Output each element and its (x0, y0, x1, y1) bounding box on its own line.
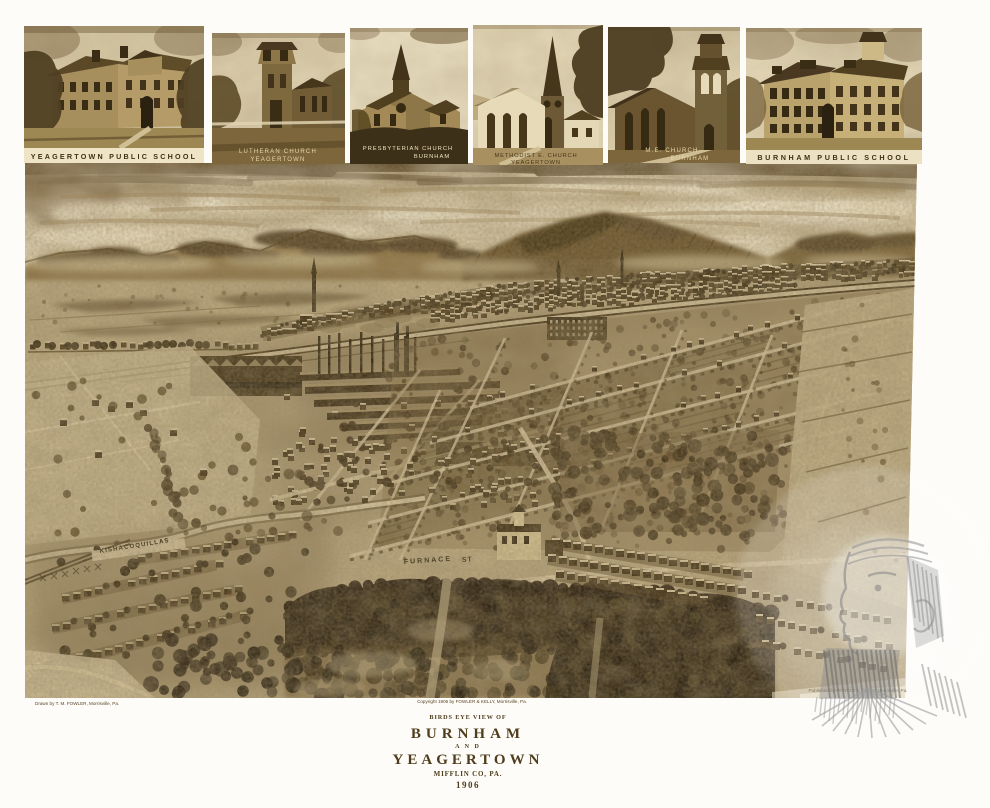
svg-text:Copyright 1906 by FOWLER & KEL: Copyright 1906 by FOWLER & KELLY, Morris… (417, 699, 527, 704)
svg-text:BURNHAM: BURNHAM (411, 726, 525, 742)
svg-text:M.E. CHURCH: M.E. CHURCH (645, 148, 698, 154)
svg-text:BIRDS EYE VIEW OF: BIRDS EYE VIEW OF (429, 714, 506, 721)
svg-text:YEAGERTOWN PUBLIC SCHOOL: YEAGERTOWN PUBLIC SCHOOL (31, 152, 197, 161)
svg-text:BURNHAM: BURNHAM (671, 156, 710, 162)
svg-text:Drawn by T. M. FOWLER, Morrisv: Drawn by T. M. FOWLER, Morrisville, Pa. (35, 701, 119, 706)
svg-text:A N D: A N D (455, 744, 481, 750)
svg-text:BURNHAM: BURNHAM (414, 154, 450, 160)
svg-text:YEAGERTOWN: YEAGERTOWN (393, 752, 544, 768)
svg-text:METHODIST E. CHURCH: METHODIST E. CHURCH (494, 153, 577, 159)
svg-text:1906: 1906 (456, 780, 480, 790)
svg-text:PRESBYTERIAN CHURCH: PRESBYTERIAN CHURCH (363, 146, 454, 152)
svg-text:YEAGERTOWN: YEAGERTOWN (250, 157, 305, 163)
svg-text:LUTHERAN CHURCH: LUTHERAN CHURCH (239, 149, 317, 155)
svg-text:BURNHAM PUBLIC SCHOOL: BURNHAM PUBLIC SCHOOL (757, 153, 910, 162)
svg-text:MIFFLIN CO, PA.: MIFFLIN CO, PA. (434, 770, 503, 778)
